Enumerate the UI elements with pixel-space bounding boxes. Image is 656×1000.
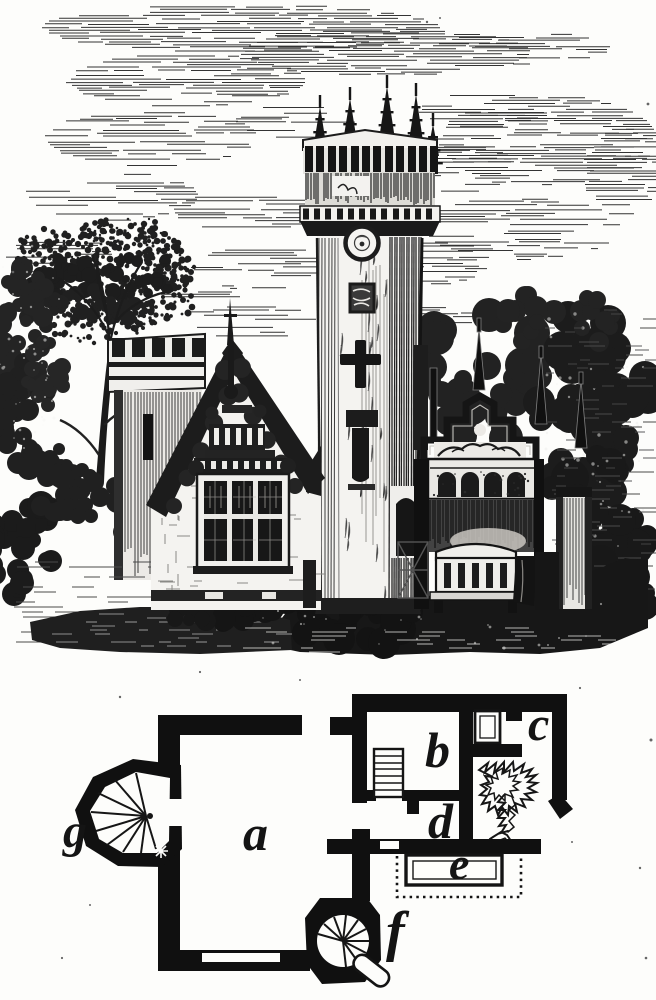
svg-text:b: b [425, 722, 450, 778]
svg-text:c: c [528, 698, 549, 751]
svg-text:a: a [243, 805, 268, 861]
svg-text:g: g [62, 805, 87, 858]
svg-text:e: e [449, 838, 469, 889]
